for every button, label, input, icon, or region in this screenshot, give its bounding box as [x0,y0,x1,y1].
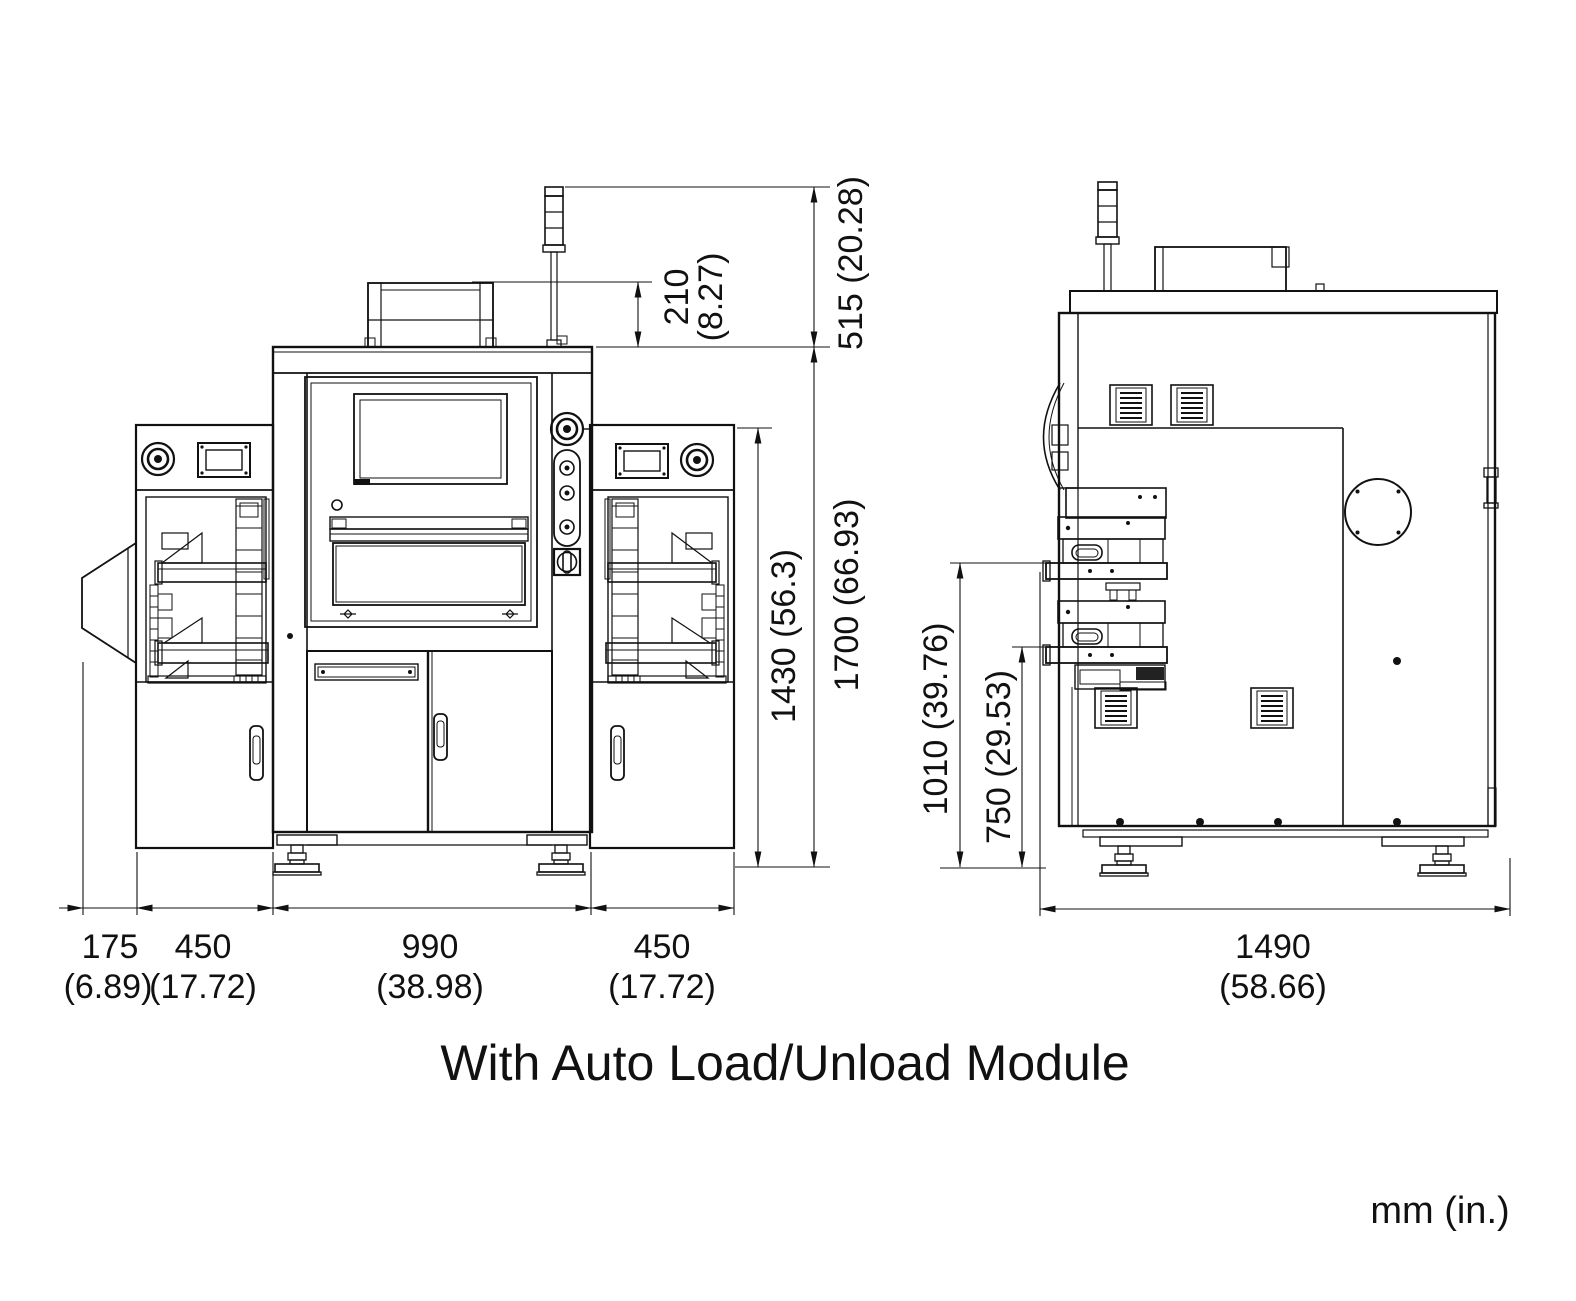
dimension-drawing: 210 (8.27) 515 (20.28) 1700 (66.93) 1430… [0,0,1576,1301]
dim-450l-mm: 450 [175,928,232,966]
dim-210-mm: 210 [658,269,696,326]
dim-750: 750 (29.53) [980,647,1022,867]
estop-button [681,444,713,476]
dim-1010-label: 1010 (39.76) [917,623,955,816]
dim-1430-label: 1430 (56.3) [765,549,803,723]
estop-button [551,413,583,445]
dim-450r-in: (17.72) [608,968,716,1006]
drawing-caption: With Auto Load/Unload Module [440,1035,1129,1091]
dim-1490-mm: 1490 [1235,928,1311,966]
dim-750-label: 750 (29.53) [980,670,1018,844]
dim-175-mm: 175 [82,928,139,966]
units-note: mm (in.) [1370,1190,1509,1232]
dim-990-in: (38.98) [376,968,484,1006]
dim-450r-mm: 450 [634,928,691,966]
dim-450l-in: (17.72) [149,968,257,1006]
dim-1490-in: (58.66) [1219,968,1327,1006]
dim-990-mm: 990 [402,928,459,966]
dim-1700-label: 1700 (66.93) [828,499,866,692]
dim-515-label: 515 (20.28) [832,176,870,350]
estop-button [142,443,174,475]
dimension-drawing-page: 210 (8.27) 515 (20.28) 1700 (66.93) 1430… [0,0,1576,1301]
dim-210-in: (8.27) [692,253,730,342]
dim-175-in: (6.89) [64,968,153,1006]
